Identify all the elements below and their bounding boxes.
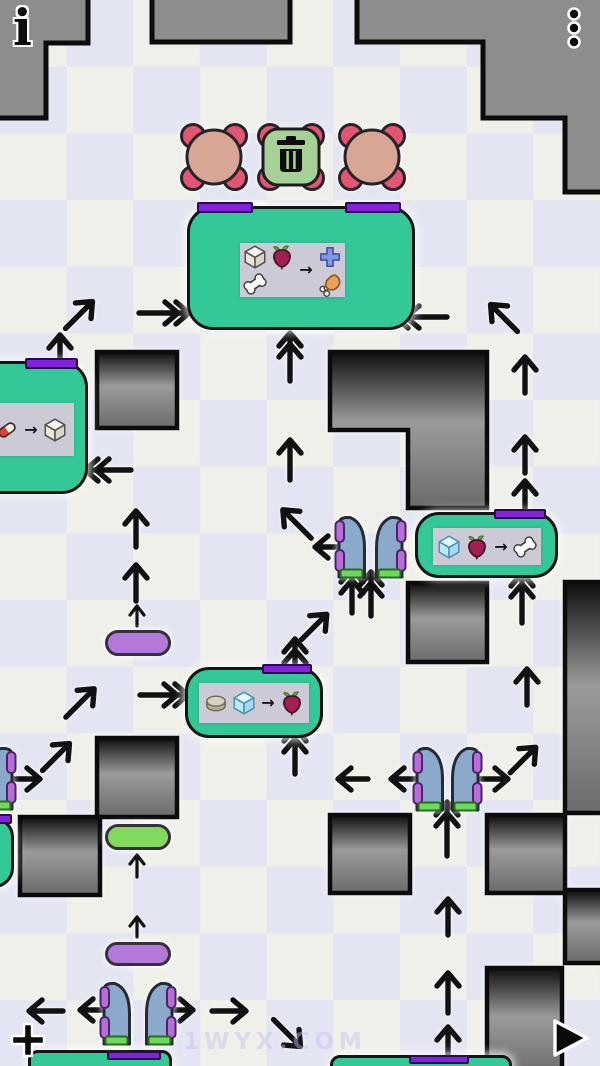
menu-kebab-icon[interactable] (562, 6, 586, 50)
direction-arrow[interactable] (480, 768, 508, 790)
game-board: →→→→ 1WYX.COM i (0, 0, 600, 1066)
plus-icon (317, 244, 343, 270)
cube-icon (242, 244, 268, 270)
cube-icon (42, 417, 68, 443)
machine-slot-bar (25, 358, 78, 369)
gate-door[interactable] (448, 745, 482, 819)
belt-pill[interactable] (105, 824, 171, 850)
direction-arrow[interactable] (511, 573, 533, 623)
direction-arrow[interactable] (275, 502, 319, 546)
machine-slot-bar (0, 814, 12, 824)
direction-arrow[interactable] (483, 297, 525, 339)
direction-arrow[interactable] (514, 357, 536, 393)
direction-arrow[interactable] (279, 333, 301, 381)
beet-icon (269, 244, 295, 270)
watermark-text: 1WYX.COM (183, 1029, 367, 1055)
play-button[interactable] (548, 1016, 592, 1060)
recipe-outputs (317, 244, 343, 297)
direction-arrow[interactable] (140, 684, 188, 706)
machine-slot-bar (494, 509, 546, 519)
machine-slot-bar (262, 664, 312, 674)
recipe-arrow: → (494, 539, 507, 555)
bone-icon (242, 271, 268, 297)
direction-arrow[interactable] (502, 739, 543, 780)
add-button[interactable] (6, 1018, 50, 1062)
direction-arrow[interactable] (279, 440, 301, 480)
gate-door[interactable] (0, 745, 16, 818)
recipe-arrow: → (261, 695, 274, 711)
recipe-inputs (436, 534, 490, 560)
recipe-arrow: → (24, 422, 37, 438)
belt-pill[interactable] (105, 942, 171, 966)
recipe-inputs (203, 690, 257, 716)
direction-arrow[interactable] (130, 917, 144, 937)
direction-arrow[interactable] (58, 681, 102, 725)
ice-icon (231, 690, 257, 716)
drumstick-icon (317, 271, 343, 297)
info-button[interactable]: i (13, 0, 32, 55)
trash-block[interactable] (257, 123, 325, 195)
direction-arrow[interactable] (437, 973, 459, 1013)
recipe-outputs (279, 690, 305, 716)
gate-door[interactable] (142, 980, 176, 1053)
trash-icon (277, 136, 305, 172)
direction-arrow[interactable] (514, 437, 536, 473)
gate-door[interactable] (335, 514, 369, 586)
recipe-inputs (0, 417, 20, 443)
machine-slot-bar (345, 202, 401, 213)
recipe-arrow: → (299, 262, 312, 278)
recipe-panel: → (199, 683, 309, 723)
beet-icon (464, 534, 490, 560)
direction-arrow[interactable] (58, 294, 100, 336)
direction-arrow[interactable] (85, 459, 131, 481)
direction-arrow[interactable] (338, 768, 368, 790)
direction-arrow[interactable] (14, 768, 40, 790)
direction-arrow[interactable] (130, 606, 144, 626)
machine-slot-bar (107, 1051, 161, 1060)
direction-arrow[interactable] (212, 1000, 246, 1022)
belt-pill[interactable] (105, 630, 171, 656)
ice-icon (436, 534, 462, 560)
direction-arrow[interactable] (516, 669, 538, 705)
machine-slot-bar (197, 202, 253, 213)
direction-arrow[interactable] (125, 565, 147, 601)
direction-arrow[interactable] (125, 511, 147, 547)
disc-icon (203, 690, 229, 716)
recipe-outputs (42, 417, 68, 443)
machine-slot-bar (409, 1055, 469, 1064)
pill-icon (0, 417, 20, 443)
bone-icon (512, 534, 538, 560)
gate-door[interactable] (100, 980, 134, 1053)
direction-arrow[interactable] (437, 899, 459, 935)
direction-arrow[interactable] (139, 302, 189, 324)
recipe-panel: → (0, 403, 74, 456)
recipe-panel: → (240, 243, 345, 297)
direction-arrow[interactable] (35, 736, 77, 778)
gate-door[interactable] (372, 514, 406, 586)
gate-door[interactable] (413, 745, 447, 819)
creature-spawner[interactable] (180, 123, 248, 195)
recipe-inputs (242, 244, 295, 297)
direction-arrow[interactable] (130, 855, 144, 877)
beet-icon (279, 690, 305, 716)
recipe-panel: → (433, 528, 541, 565)
creature-spawner[interactable] (338, 123, 406, 195)
recipe-outputs (512, 534, 538, 560)
